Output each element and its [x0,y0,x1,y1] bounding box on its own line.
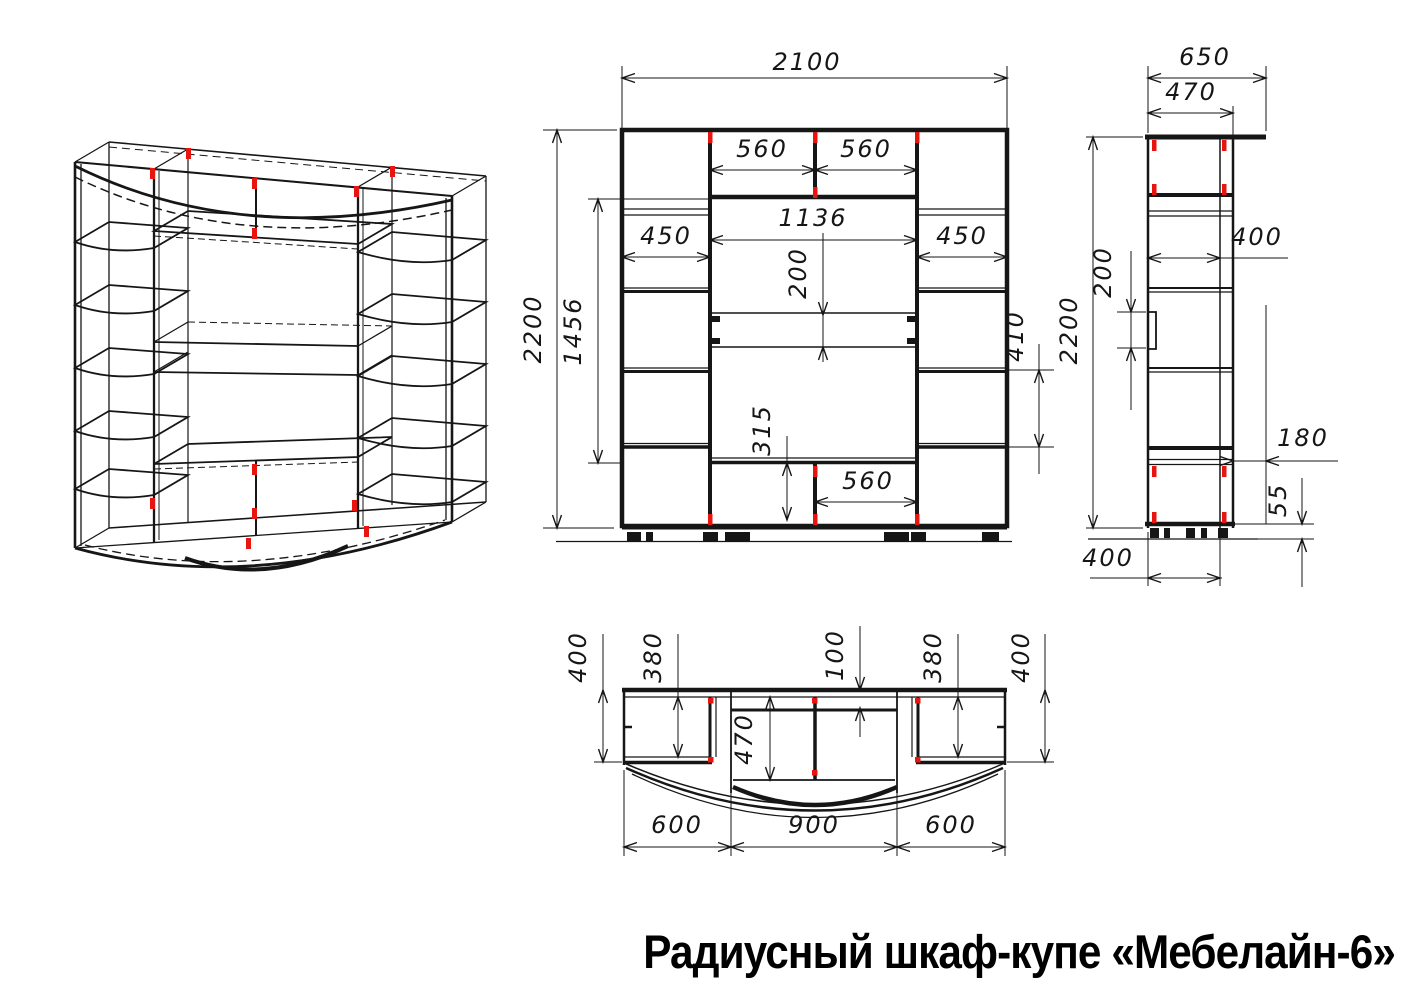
side-view-structure [1088,137,1266,539]
dim-front-drawer-band: 200 [784,247,812,299]
dim-side-plinth-height: 55 [1264,483,1292,518]
dim-plan-shelf-depth-right: 380 [919,631,947,683]
dim-plan-section-center: 900 [788,811,840,839]
dim-plan-side-depth-left: 400 [564,631,592,683]
dim-side-body-depth: 470 [1165,78,1217,106]
dim-front-bottom-section: 315 [748,404,776,456]
dim-side-total-depth: 650 [1179,43,1231,71]
iso-left-shelves [75,222,188,497]
dim-front-top-shelf-right: 560 [840,135,892,163]
dim-front-total-width: 2100 [772,48,841,76]
dim-front-opening-height: 1456 [559,296,587,365]
dim-plan-section-right: 600 [925,811,977,839]
dim-side-total-height: 2200 [1055,295,1083,364]
dim-front-top-shelf-left: 560 [736,135,788,163]
side-view-connectors [1152,140,1227,523]
dim-front-total-height: 2200 [519,294,547,363]
dim-front-middle-width: 1136 [778,204,847,232]
drawing-title: Радиусный шкаф-купе «Мебелайн-6» [518,924,1396,979]
front-view-structure [556,130,1012,542]
iso-middle-bottom-shelf [154,437,392,464]
dim-plan-center-depth: 470 [730,713,758,765]
dim-side-top-overhang: 180 [1277,424,1329,452]
dim-side-shelf-depth: 400 [1231,223,1283,251]
side-view-labels: 650 470 2200 200 400 180 55 400 [1055,43,1329,572]
iso-drawer-band [154,322,392,375]
dim-front-right-shelf-spacing: 410 [1001,310,1029,362]
front-view: 2100 560 560 1136 450 450 2200 1456 200 … [519,48,1054,542]
dim-front-bottom-shelf: 560 [842,467,894,495]
side-view-fills [1150,528,1228,538]
drawing-sheet: 2100 560 560 1136 450 450 2200 1456 200 … [0,0,1403,992]
dim-plan-side-depth-right: 400 [1007,631,1035,683]
side-view: 650 470 2200 200 400 180 55 400 [1055,43,1338,587]
side-view-dimensions [1086,66,1338,587]
dim-side-drawer-band: 200 [1089,246,1117,298]
plan-radius-center-door [733,787,897,805]
dim-plan-shelf-depth-left: 380 [639,631,667,683]
plan-view-labels: 400 380 100 380 400 470 600 900 600 [564,629,1035,839]
isometric-view [75,142,486,570]
wardrobe-technical-drawing: 2100 560 560 1136 450 450 2200 1456 200 … [0,0,1403,992]
dim-plan-center-setback: 100 [821,629,849,681]
dim-front-right-column: 450 [936,222,988,250]
front-view-labels: 2100 560 560 1136 450 450 2200 1456 200 … [519,48,1029,495]
plan-view: 400 380 100 380 400 470 600 900 600 [564,626,1054,856]
iso-right-shelves [358,232,486,504]
dim-front-left-column: 450 [640,222,692,250]
dim-plan-section-left: 600 [651,811,703,839]
dim-side-base-depth: 400 [1082,544,1134,572]
